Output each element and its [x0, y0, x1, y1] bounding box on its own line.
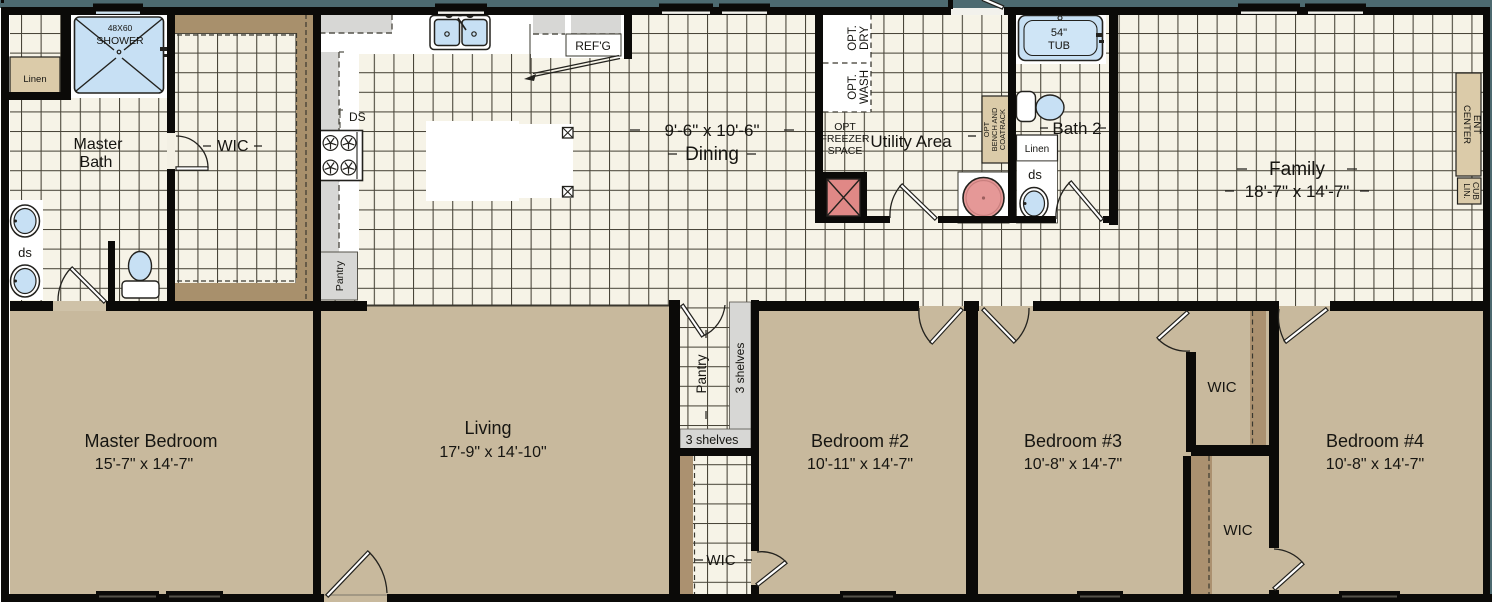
svg-text:OPT.: OPT. [847, 74, 859, 100]
svg-text:SPACE: SPACE [828, 145, 863, 157]
svg-text:WIC: WIC [706, 552, 735, 569]
svg-text:Family: Family [1269, 159, 1325, 180]
svg-text:Living: Living [464, 418, 511, 438]
svg-text:DRY: DRY [859, 26, 871, 50]
svg-text:Master Bedroom: Master Bedroom [84, 431, 217, 451]
svg-text:Utility Area: Utility Area [870, 132, 952, 151]
svg-text:LIN.: LIN. [1462, 183, 1472, 199]
svg-text:Bedroom #4: Bedroom #4 [1326, 431, 1424, 451]
svg-text:TUB: TUB [1048, 40, 1070, 52]
svg-text:54": 54" [1051, 27, 1067, 39]
svg-text:WIC: WIC [1207, 379, 1236, 396]
svg-text:FREEZER: FREEZER [820, 133, 869, 145]
svg-text:Pantry: Pantry [334, 260, 346, 291]
svg-text:WIC: WIC [1223, 522, 1252, 539]
svg-text:10'-8" x 14'-7": 10'-8" x 14'-7" [1024, 456, 1122, 473]
svg-text:Bath: Bath [80, 154, 113, 171]
svg-text:9'-6" x 10'-6": 9'-6" x 10'-6" [664, 121, 759, 140]
svg-text:WASH: WASH [859, 70, 871, 104]
svg-text:REF'G: REF'G [575, 39, 611, 53]
svg-text:Dining: Dining [685, 144, 739, 165]
svg-text:CENTER: CENTER [1461, 105, 1472, 144]
svg-text:COATRACK: COATRACK [998, 109, 1007, 150]
svg-text:17'-9" x 14'-10": 17'-9" x 14'-10" [439, 444, 546, 461]
svg-text:10'-8" x 14'-7": 10'-8" x 14'-7" [1326, 456, 1424, 473]
svg-text:Linen: Linen [23, 74, 46, 85]
svg-text:OPT.: OPT. [847, 25, 859, 51]
svg-text:18'-7" x 14'-7": 18'-7" x 14'-7" [1245, 182, 1350, 201]
svg-text:Linen: Linen [1025, 144, 1049, 155]
svg-text:Master: Master [74, 136, 124, 153]
svg-text:48X60: 48X60 [108, 23, 133, 33]
svg-text:10'-11" x 14'-7": 10'-11" x 14'-7" [807, 456, 913, 473]
svg-text:DS: DS [349, 110, 366, 124]
svg-text:3 shelves: 3 shelves [686, 433, 739, 447]
svg-text:ds: ds [18, 245, 32, 260]
svg-text:15'-7" x 14'-7": 15'-7" x 14'-7" [95, 456, 193, 473]
svg-text:3 shelves: 3 shelves [733, 343, 747, 394]
svg-text:OPT: OPT [834, 121, 856, 133]
svg-text:Bedroom #2: Bedroom #2 [811, 431, 909, 451]
svg-text:Pantry: Pantry [694, 354, 709, 393]
svg-text:WIC: WIC [217, 138, 248, 155]
svg-text:Bedroom #3: Bedroom #3 [1024, 431, 1122, 451]
svg-text:SHOWER: SHOWER [96, 35, 144, 47]
svg-text:ds: ds [1028, 167, 1042, 182]
svg-text:Bath 2: Bath 2 [1052, 119, 1101, 138]
